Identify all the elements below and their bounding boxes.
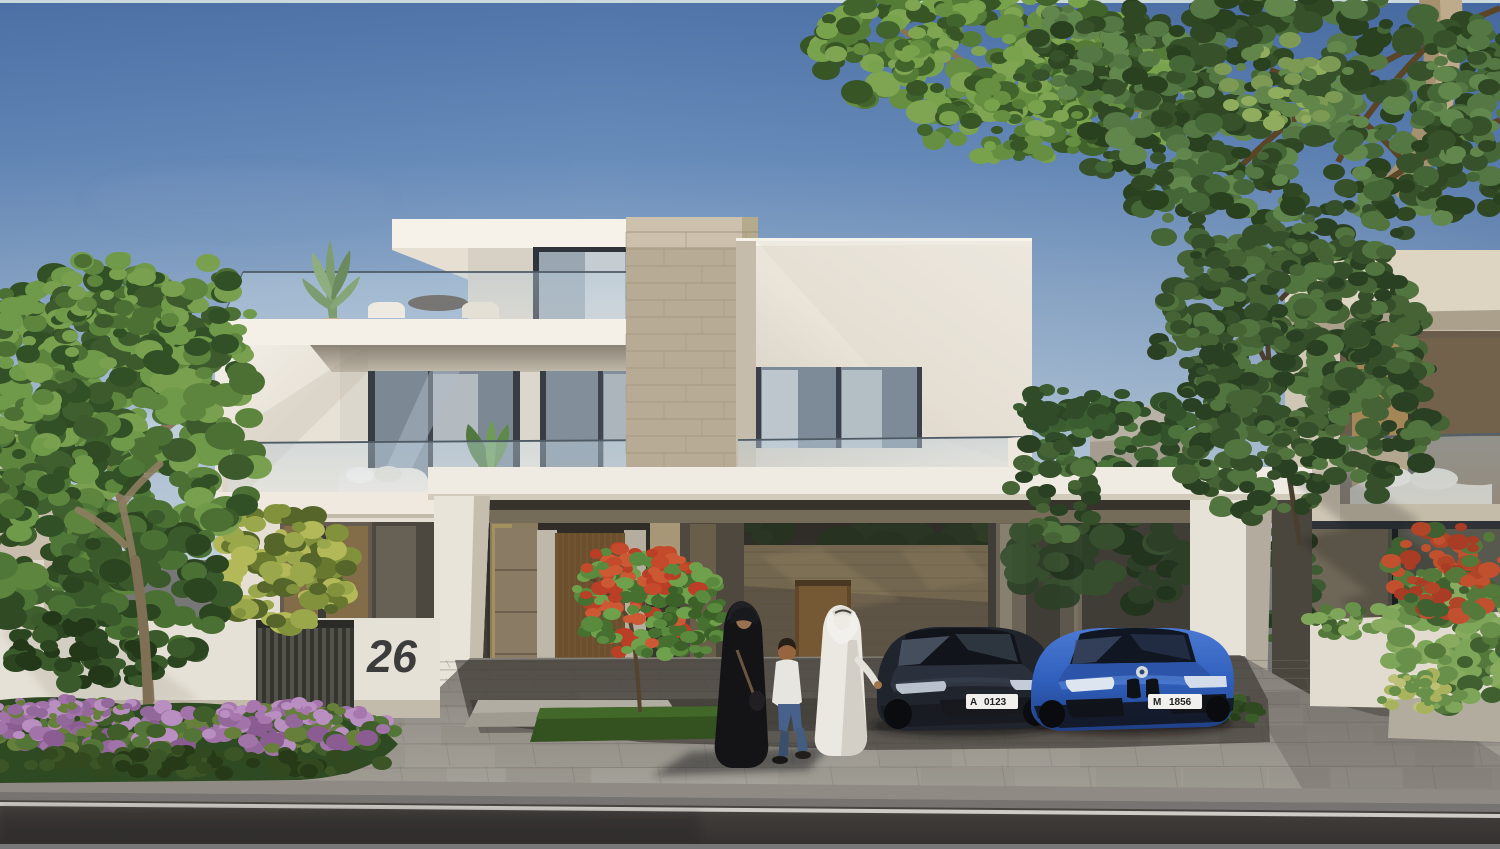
svg-text:1856: 1856 — [1169, 697, 1192, 708]
svg-text:0123: 0123 — [984, 697, 1007, 708]
svg-text:26: 26 — [366, 631, 418, 682]
svg-text:A: A — [970, 697, 977, 708]
svg-text:M: M — [1153, 697, 1161, 708]
